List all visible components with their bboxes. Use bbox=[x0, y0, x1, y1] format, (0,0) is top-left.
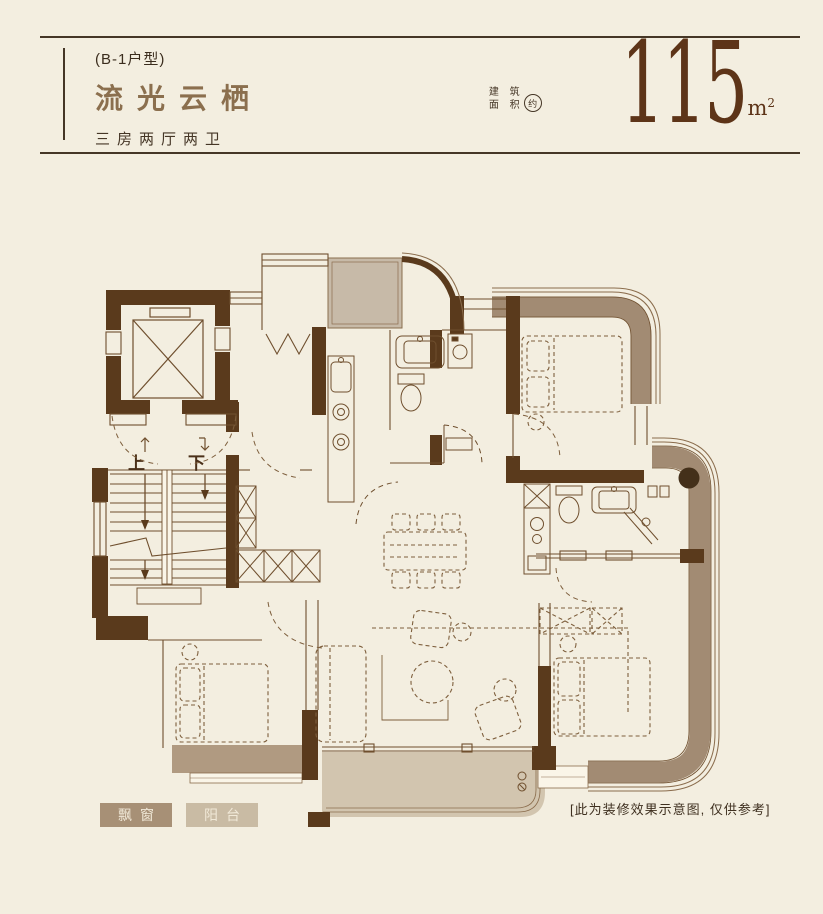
dining-chair bbox=[392, 572, 410, 588]
coffee-table bbox=[411, 661, 453, 703]
bed-3 bbox=[554, 658, 650, 736]
entry-cabinets bbox=[236, 486, 320, 582]
bedroom3-door bbox=[556, 568, 592, 602]
accent-chair bbox=[473, 694, 523, 742]
toilet-bowl bbox=[401, 385, 421, 411]
elevator bbox=[133, 308, 203, 398]
flue-platform bbox=[328, 258, 402, 328]
disclaimer: [此为装修效果示意图, 仅供参考] bbox=[570, 799, 770, 818]
dining-table bbox=[384, 532, 466, 570]
column bbox=[679, 468, 700, 489]
label-up: 上 bbox=[128, 454, 145, 473]
bed-2 bbox=[176, 664, 268, 742]
rug-outline bbox=[382, 655, 448, 720]
dining-chair bbox=[417, 514, 435, 530]
nightstand-2 bbox=[182, 644, 198, 660]
dining-chair bbox=[442, 514, 460, 530]
stove-burner bbox=[333, 434, 349, 450]
sofa bbox=[316, 646, 366, 742]
bathroom-master bbox=[524, 484, 669, 574]
dining-chair bbox=[417, 572, 435, 588]
exterior-band-edges bbox=[492, 297, 711, 783]
landing-door-left bbox=[112, 416, 158, 464]
dining-chair bbox=[442, 572, 460, 588]
bedroom1-door bbox=[514, 414, 560, 458]
kitchen bbox=[328, 356, 398, 524]
stove-burner bbox=[333, 404, 349, 420]
armchair bbox=[410, 610, 452, 649]
nightstand-3 bbox=[560, 636, 576, 652]
legend-bay-window: 飘窗 bbox=[100, 803, 172, 827]
bed-1 bbox=[522, 336, 622, 412]
legend-balcony: 阳台 bbox=[186, 803, 258, 827]
furniture bbox=[176, 336, 650, 742]
toilet-tank bbox=[556, 486, 582, 495]
living-area-outline bbox=[372, 628, 628, 714]
floor-plan: 上 下 bbox=[0, 0, 823, 914]
interior-walls bbox=[92, 259, 704, 827]
toilet-tank bbox=[398, 374, 424, 384]
dining-chair bbox=[392, 514, 410, 530]
side-table bbox=[494, 679, 516, 701]
wardrobe bbox=[592, 608, 622, 634]
legend: 飘窗 阳台 bbox=[100, 803, 258, 827]
balcony-floor bbox=[322, 752, 545, 817]
side-table bbox=[453, 623, 471, 641]
entry-door bbox=[252, 432, 300, 478]
bath-door-arc bbox=[444, 425, 482, 463]
exterior-wall-band bbox=[492, 307, 700, 772]
bay-window-left bbox=[172, 745, 312, 773]
toilet-bowl bbox=[559, 497, 579, 523]
floorplan-page: (B-1户型) 流光云栖 三房两厅两卫 建 筑 面 积 约 115 m2 bbox=[0, 0, 823, 914]
bedroom2-door bbox=[268, 602, 322, 648]
curtain-wall-lines bbox=[492, 288, 719, 791]
